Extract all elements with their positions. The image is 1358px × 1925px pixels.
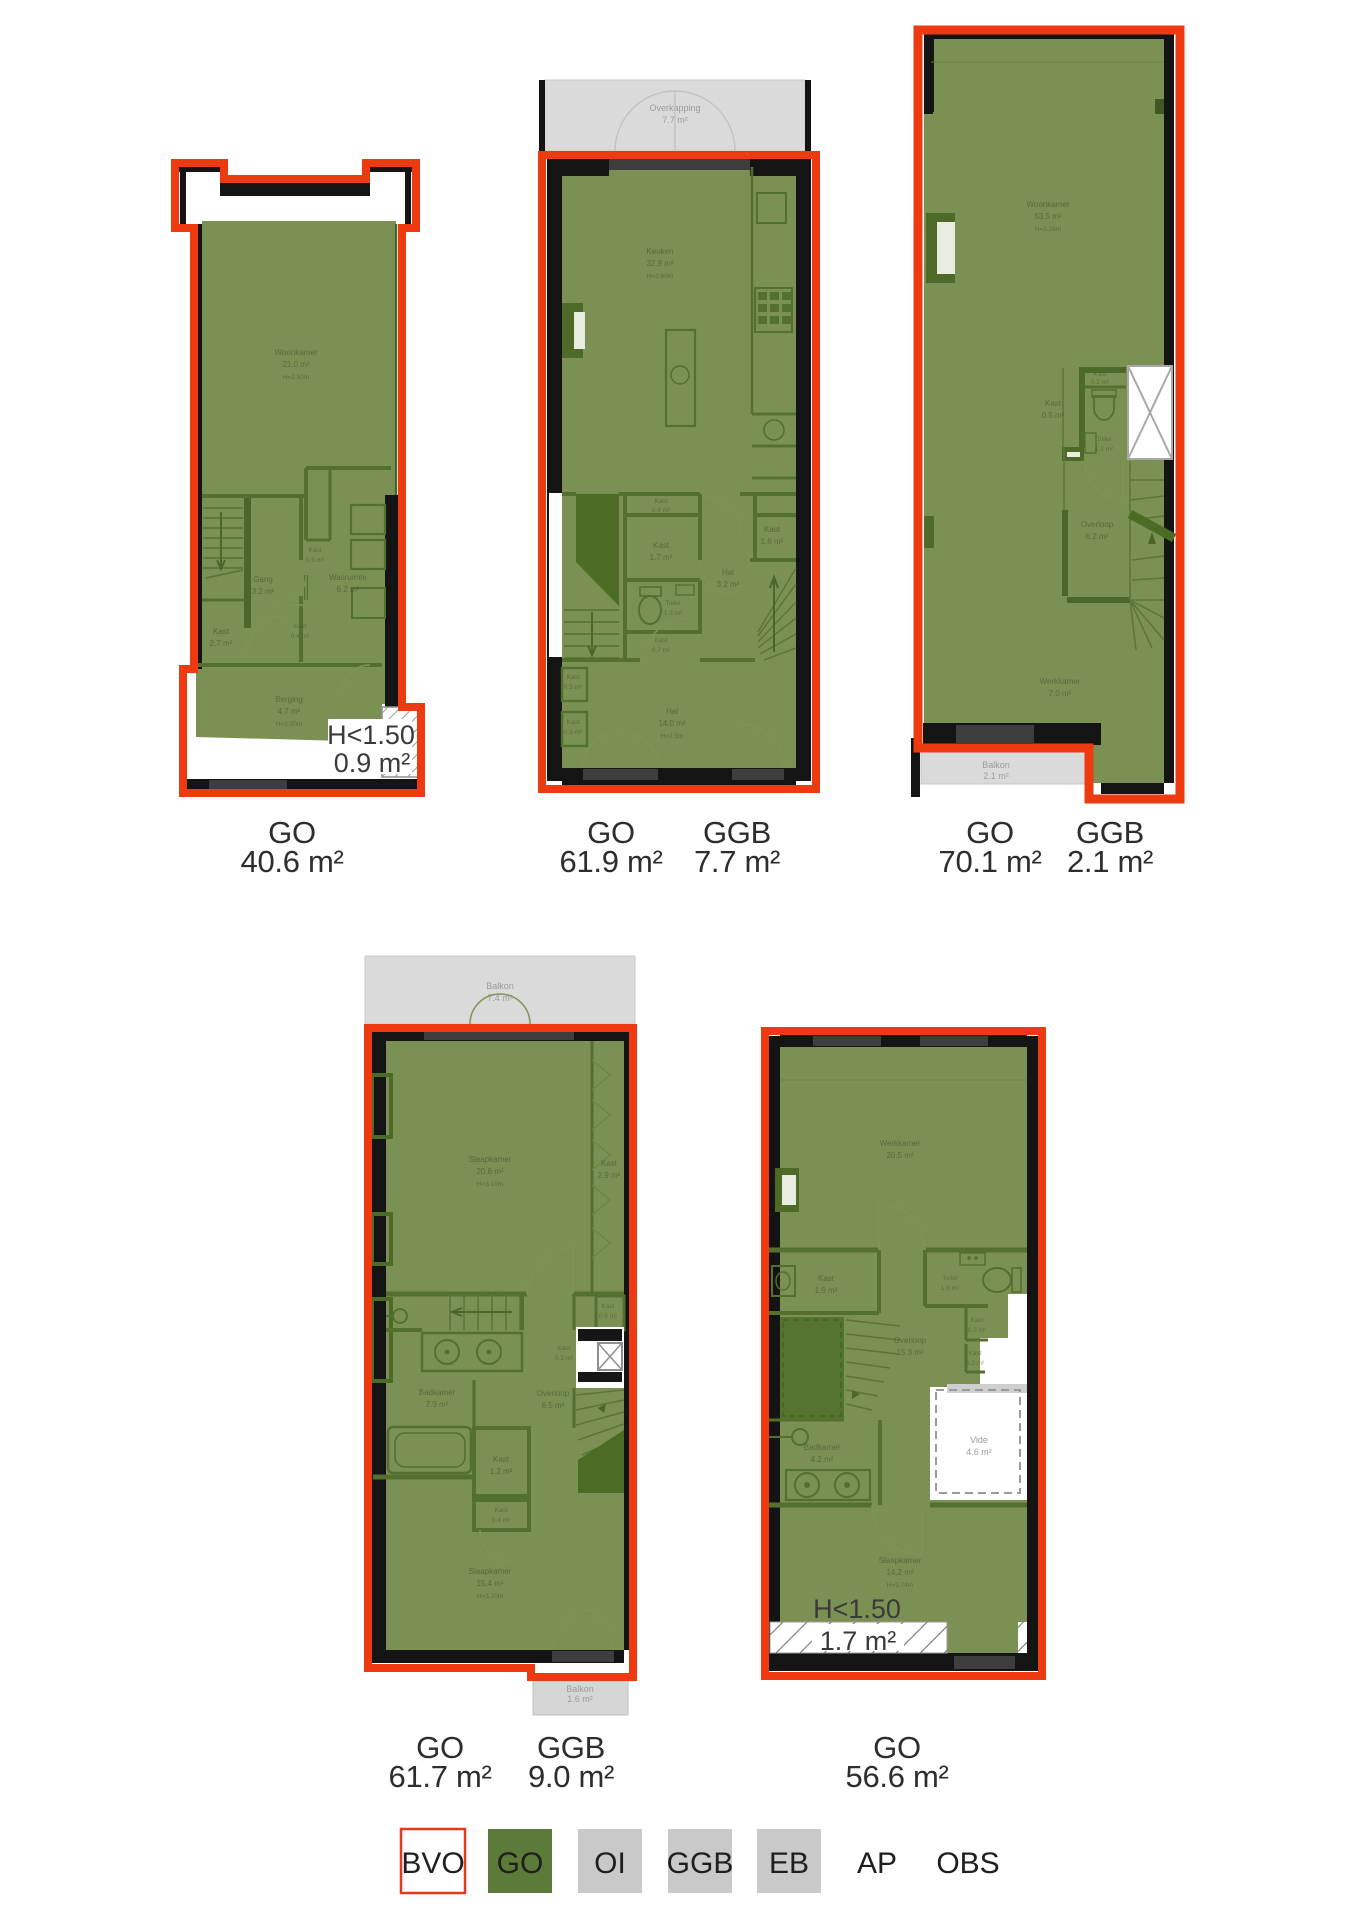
svg-text:1.2 m²: 1.2 m² — [1095, 446, 1114, 453]
svg-text:H=3.10m: H=3.10m — [477, 1181, 504, 1188]
svg-text:H<1.50: H<1.50 — [327, 720, 415, 750]
svg-text:0.3 m²: 0.3 m² — [555, 1355, 574, 1362]
svg-text:Woonkamer: Woonkamer — [275, 348, 318, 357]
svg-text:Toilet: Toilet — [942, 1275, 957, 1282]
svg-text:61.7 m²: 61.7 m² — [389, 1759, 492, 1794]
svg-text:Slaapkamer: Slaapkamer — [469, 1567, 512, 1576]
svg-text:Hal: Hal — [666, 707, 678, 716]
svg-text:2.1 m²: 2.1 m² — [983, 771, 1009, 781]
svg-text:6.5 m²: 6.5 m² — [542, 1401, 565, 1410]
svg-text:H=2.00m: H=2.00m — [276, 721, 303, 728]
svg-text:Kast: Kast — [1093, 371, 1106, 378]
svg-text:OBS: OBS — [936, 1847, 999, 1880]
svg-text:40.6 m²: 40.6 m² — [241, 844, 344, 879]
svg-text:32.9 m²: 32.9 m² — [646, 259, 673, 268]
svg-text:3.2 m²: 3.2 m² — [252, 587, 275, 596]
svg-text:20.6 m²: 20.6 m² — [476, 1167, 503, 1176]
svg-text:Kast: Kast — [308, 547, 321, 554]
svg-text:Overloop: Overloop — [537, 1389, 570, 1398]
svg-text:Kast: Kast — [566, 719, 579, 726]
svg-text:3.2 m²: 3.2 m² — [717, 580, 740, 589]
svg-text:Kast: Kast — [601, 1303, 614, 1310]
svg-text:1.3 m²: 1.3 m² — [664, 610, 683, 617]
svg-text:15.3 m²: 15.3 m² — [896, 1348, 923, 1357]
svg-text:Kast: Kast — [654, 498, 667, 505]
svg-text:H=2.74m: H=2.74m — [887, 1582, 914, 1589]
svg-text:0.5 m²: 0.5 m² — [306, 557, 325, 564]
svg-text:1.9 m²: 1.9 m² — [815, 1286, 838, 1295]
svg-text:2.7 m²: 2.7 m² — [210, 639, 233, 648]
svg-text:14.0 m²: 14.0 m² — [658, 719, 685, 728]
svg-text:EB: EB — [769, 1847, 809, 1880]
svg-text:GGB: GGB — [667, 1847, 734, 1880]
svg-text:0.4 m²: 0.4 m² — [492, 1517, 511, 1524]
svg-text:Kast: Kast — [566, 674, 579, 681]
svg-text:0.2 m²: 0.2 m² — [966, 1360, 985, 1367]
svg-text:AP: AP — [857, 1847, 897, 1880]
svg-text:Overloop: Overloop — [1081, 520, 1114, 529]
svg-text:7.9 m²: 7.9 m² — [426, 1400, 449, 1409]
svg-text:1.6 m²: 1.6 m² — [567, 1694, 593, 1704]
svg-text:H=3.26m: H=3.26m — [1035, 226, 1062, 233]
svg-text:Balkon: Balkon — [486, 981, 514, 991]
svg-text:Hal: Hal — [722, 568, 734, 577]
svg-text:Werkkamer: Werkkamer — [1040, 677, 1081, 686]
svg-text:H=3.20m: H=3.20m — [477, 1593, 504, 1600]
svg-text:Kast: Kast — [213, 627, 230, 636]
svg-text:Toilet: Toilet — [665, 600, 680, 607]
svg-text:Kast: Kast — [1045, 399, 1062, 408]
svg-text:0.2 m²: 0.2 m² — [1091, 379, 1110, 386]
svg-text:Kast: Kast — [293, 623, 306, 630]
svg-text:6.2 m²: 6.2 m² — [337, 585, 360, 594]
svg-text:Wasruimte: Wasruimte — [329, 573, 367, 582]
svg-text:20.5 m²: 20.5 m² — [886, 1151, 913, 1160]
svg-text:0.5 m²: 0.5 m² — [564, 684, 583, 691]
svg-text:Slaapkamer: Slaapkamer — [469, 1155, 512, 1164]
svg-text:Overloop: Overloop — [894, 1336, 927, 1345]
svg-text:Kast: Kast — [557, 1345, 570, 1352]
svg-text:0.9 m²: 0.9 m² — [334, 748, 411, 778]
svg-text:Vide: Vide — [970, 1435, 988, 1445]
svg-text:1.6 m²: 1.6 m² — [761, 537, 784, 546]
svg-text:Kast: Kast — [493, 1455, 510, 1464]
svg-text:56.6 m²: 56.6 m² — [846, 1759, 949, 1794]
svg-text:Badkamer: Badkamer — [419, 1388, 456, 1397]
svg-text:GO: GO — [497, 1847, 544, 1880]
svg-text:2.1 m²: 2.1 m² — [1067, 844, 1153, 879]
svg-text:Werkkamer: Werkkamer — [880, 1139, 921, 1148]
svg-text:7.0 m²: 7.0 m² — [1049, 689, 1072, 698]
svg-text:0.6 m²: 0.6 m² — [599, 1313, 618, 1320]
svg-text:Kast: Kast — [968, 1350, 981, 1357]
svg-text:1.7 m²: 1.7 m² — [650, 553, 673, 562]
svg-text:Kast: Kast — [818, 1274, 835, 1283]
svg-text:Keuken: Keuken — [646, 247, 673, 256]
svg-text:Badkamer: Badkamer — [804, 1443, 841, 1452]
svg-text:0.6 m²: 0.6 m² — [652, 507, 671, 514]
svg-text:70.1 m²: 70.1 m² — [939, 844, 1042, 879]
svg-text:4.2 m²: 4.2 m² — [811, 1455, 834, 1464]
svg-text:0.5 m²: 0.5 m² — [1042, 411, 1065, 420]
svg-text:H<1.50: H<1.50 — [813, 1594, 901, 1624]
svg-text:OI: OI — [594, 1847, 626, 1880]
svg-text:Kast: Kast — [494, 1507, 507, 1514]
svg-text:Kast: Kast — [654, 637, 667, 644]
svg-text:BVO: BVO — [401, 1847, 464, 1880]
svg-text:Woonkamer: Woonkamer — [1027, 200, 1070, 209]
svg-text:21.0 m²: 21.0 m² — [282, 360, 309, 369]
svg-text:Kast: Kast — [653, 541, 670, 550]
svg-text:Balkon: Balkon — [566, 1684, 594, 1694]
svg-text:0.4 m²: 0.4 m² — [291, 633, 310, 640]
svg-text:H=2.5m: H=2.5m — [661, 733, 684, 740]
svg-text:Balkon: Balkon — [982, 760, 1010, 770]
svg-text:H=2.50m: H=2.50m — [283, 374, 310, 381]
svg-text:H=2.60m: H=2.60m — [647, 273, 674, 280]
svg-text:9.0 m²: 9.0 m² — [528, 1759, 614, 1794]
svg-text:Berging: Berging — [275, 695, 303, 704]
svg-text:1.6 m²: 1.6 m² — [941, 1285, 960, 1292]
svg-text:53.5 m²: 53.5 m² — [1034, 212, 1061, 221]
svg-text:Toilet: Toilet — [1096, 436, 1111, 443]
svg-text:61.9 m²: 61.9 m² — [560, 844, 663, 879]
svg-text:1.7 m²: 1.7 m² — [820, 1626, 897, 1656]
svg-text:6.2 m²: 6.2 m² — [1086, 532, 1109, 541]
svg-text:14.2 m²: 14.2 m² — [886, 1568, 913, 1577]
svg-text:0.3 m²: 0.3 m² — [968, 1327, 987, 1334]
svg-text:7.7 m²: 7.7 m² — [694, 844, 780, 879]
svg-text:4.7 m²: 4.7 m² — [278, 707, 301, 716]
svg-text:15.4 m²: 15.4 m² — [476, 1579, 503, 1588]
svg-text:Kast: Kast — [601, 1159, 618, 1168]
svg-text:Kast: Kast — [764, 525, 781, 534]
svg-text:Slaapkamer: Slaapkamer — [879, 1556, 922, 1565]
svg-text:0.7 m²: 0.7 m² — [652, 647, 671, 654]
svg-text:Gang: Gang — [253, 575, 273, 584]
svg-text:Kast: Kast — [970, 1317, 983, 1324]
svg-text:0.5 m²: 0.5 m² — [564, 729, 583, 736]
svg-text:4.6 m²: 4.6 m² — [966, 1447, 992, 1457]
svg-text:2.9 m²: 2.9 m² — [598, 1171, 621, 1180]
svg-text:1.2 m²: 1.2 m² — [490, 1467, 513, 1476]
